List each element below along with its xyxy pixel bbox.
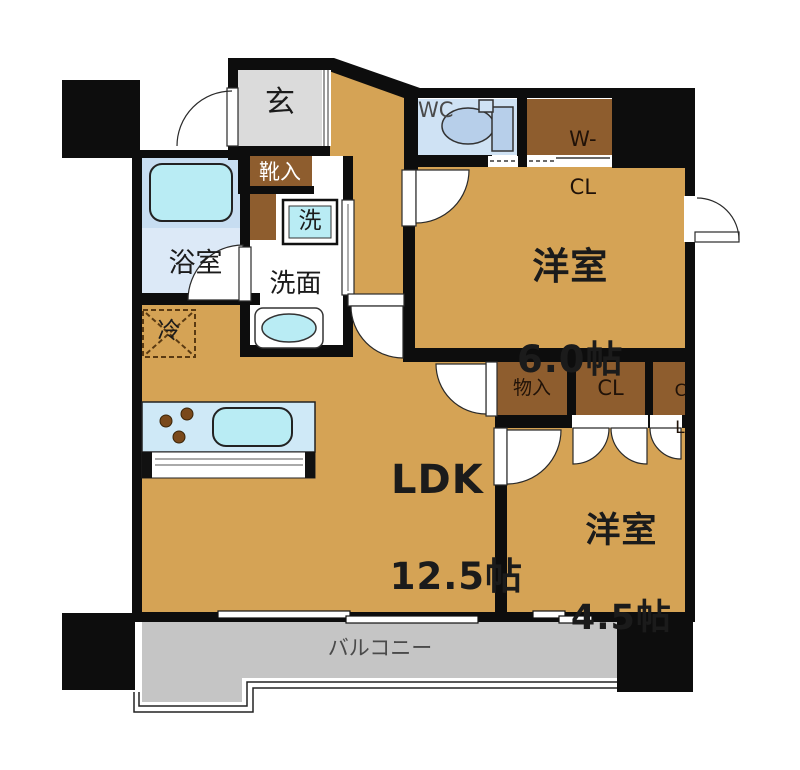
entry-door-leaf: [227, 88, 238, 146]
shoe-storage-label: 靴入: [248, 160, 312, 184]
genkan-label: 玄: [238, 86, 322, 121]
floorplan-canvas: 玄 靴入 浴室 洗 洗面 冷 WC W- CL 洋室 6.0帖 物入 CL C …: [0, 0, 800, 770]
east-door-leaf: [695, 232, 739, 242]
kitchen-sink-icon: [213, 408, 292, 446]
kitchen-counter: [142, 402, 315, 478]
storage-label: 物入: [497, 378, 567, 400]
ldk-name: LDK: [391, 457, 484, 503]
bedroom6-size: 6.0帖: [517, 338, 624, 381]
genkan-step: [322, 70, 331, 146]
sink-bowl-icon: [262, 314, 316, 342]
balcony-label: バルコニー: [270, 636, 490, 660]
toilet-tank-icon: [492, 107, 513, 151]
bedroom6-name: 洋室: [532, 245, 608, 288]
burner-icon: [160, 415, 172, 427]
burner-icon: [173, 431, 185, 443]
ldk-size: 12.5帖: [390, 555, 523, 598]
wc-label: WC: [418, 98, 458, 122]
ldk-door-leaf: [348, 294, 404, 306]
bathroom-label: 浴室: [148, 248, 243, 279]
bedroom6-door-leaf: [402, 170, 416, 226]
closet2-label: C L: [653, 363, 685, 456]
wcl-line2: CL: [570, 175, 596, 199]
bedroom45-label: 洋室 4.5帖: [505, 466, 685, 685]
bedroom45-size: 4.5帖: [571, 598, 672, 638]
closet2-line2: L: [675, 418, 684, 438]
vanity-label: 洗面: [248, 270, 343, 300]
ldk-label: LDK 12.5帖: [330, 408, 485, 648]
hall-storage-strip: [250, 194, 276, 240]
closet-label: CL: [576, 376, 645, 400]
wcl-line1: W-: [569, 127, 597, 151]
bathtub-icon: [150, 164, 232, 221]
bedroom45-name: 洋室: [585, 511, 657, 551]
burner-icon: [181, 408, 193, 420]
toilet-flush-icon: [479, 100, 493, 112]
fridge-label: 冷: [143, 318, 195, 344]
washer-label: 洗: [283, 208, 337, 234]
closet2-line1: C: [675, 381, 687, 401]
entry-door-arc: [177, 91, 232, 146]
east-door-opening: [684, 196, 696, 242]
